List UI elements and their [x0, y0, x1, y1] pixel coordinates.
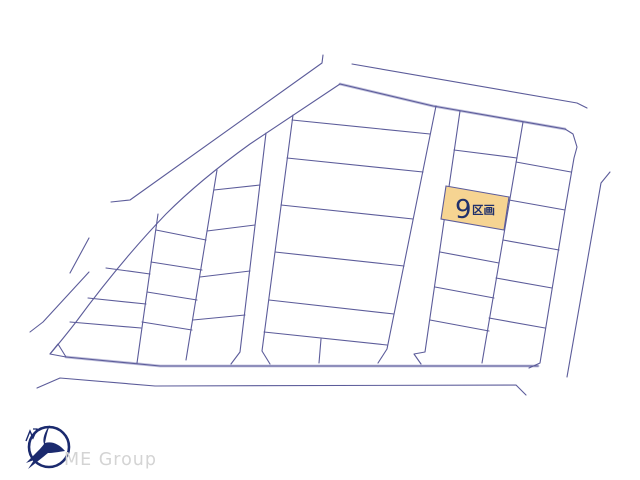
lot-divider [193, 315, 245, 320]
lot-divider [435, 287, 494, 298]
lot-divider [509, 200, 565, 210]
outer-road-segment-southwest-2 [70, 238, 89, 273]
lot-divider [503, 240, 559, 250]
road-bc-right-edge [262, 115, 293, 364]
diagonal-road-lower-edge-west-boundary [50, 84, 340, 354]
lot-divider [281, 205, 413, 219]
me-group-bird-logo-icon [26, 425, 65, 469]
lot-divider [454, 150, 517, 158]
lot-divider [496, 278, 552, 288]
lot-divider [156, 230, 206, 240]
road-cd-right-edge [414, 111, 460, 364]
northeast-corner-bend [565, 129, 577, 158]
top-boundary-road-edge-under [340, 84, 565, 129]
lot-divider [516, 162, 571, 172]
road-lines [30, 55, 610, 395]
southwest-corner-triangle [50, 344, 66, 357]
lot-divider [151, 262, 202, 270]
lot-divider [142, 322, 192, 330]
lot-divider [275, 252, 404, 266]
interior-road-lines [137, 106, 523, 364]
lot-divider [269, 300, 394, 314]
lot-divider [106, 268, 150, 274]
east-road-inner-edge [529, 158, 574, 368]
lot-divider [489, 318, 545, 328]
lot-divider [207, 225, 255, 231]
lot-divider [214, 185, 260, 190]
lot-divider [88, 298, 146, 304]
lot-divider [200, 271, 250, 277]
road-bc-left-edge [231, 133, 266, 364]
lot-divider [264, 332, 387, 345]
east-road-outer-edge [567, 172, 610, 377]
lot-9-unit-label: 区画 [472, 203, 495, 217]
bottom-road-lower-edge [37, 378, 526, 395]
top-road-upper-edge [352, 64, 587, 108]
plot-map-page: 9 区画 ME Group [0, 0, 640, 480]
lot-divider [70, 322, 141, 328]
lot-divider [430, 320, 489, 331]
road-cd-left-edge [378, 106, 436, 363]
brand-wordmark: ME Group [64, 450, 157, 470]
lot-divider [287, 158, 423, 172]
column-a1-a2-divider [137, 214, 158, 363]
column-a2-b-divider [186, 170, 217, 360]
column-c-bottom-row-divider [319, 339, 321, 363]
me-group-logo [26, 425, 69, 469]
lot-divider [147, 292, 197, 300]
lot-divider [440, 252, 499, 263]
lot-divider-lines [70, 120, 571, 345]
lot-9-number-label: 9 [455, 195, 472, 225]
subdivision-map: 9 区画 [0, 0, 640, 480]
highlighted-lot-9: 9 区画 [441, 186, 509, 230]
lot-divider [292, 120, 430, 134]
